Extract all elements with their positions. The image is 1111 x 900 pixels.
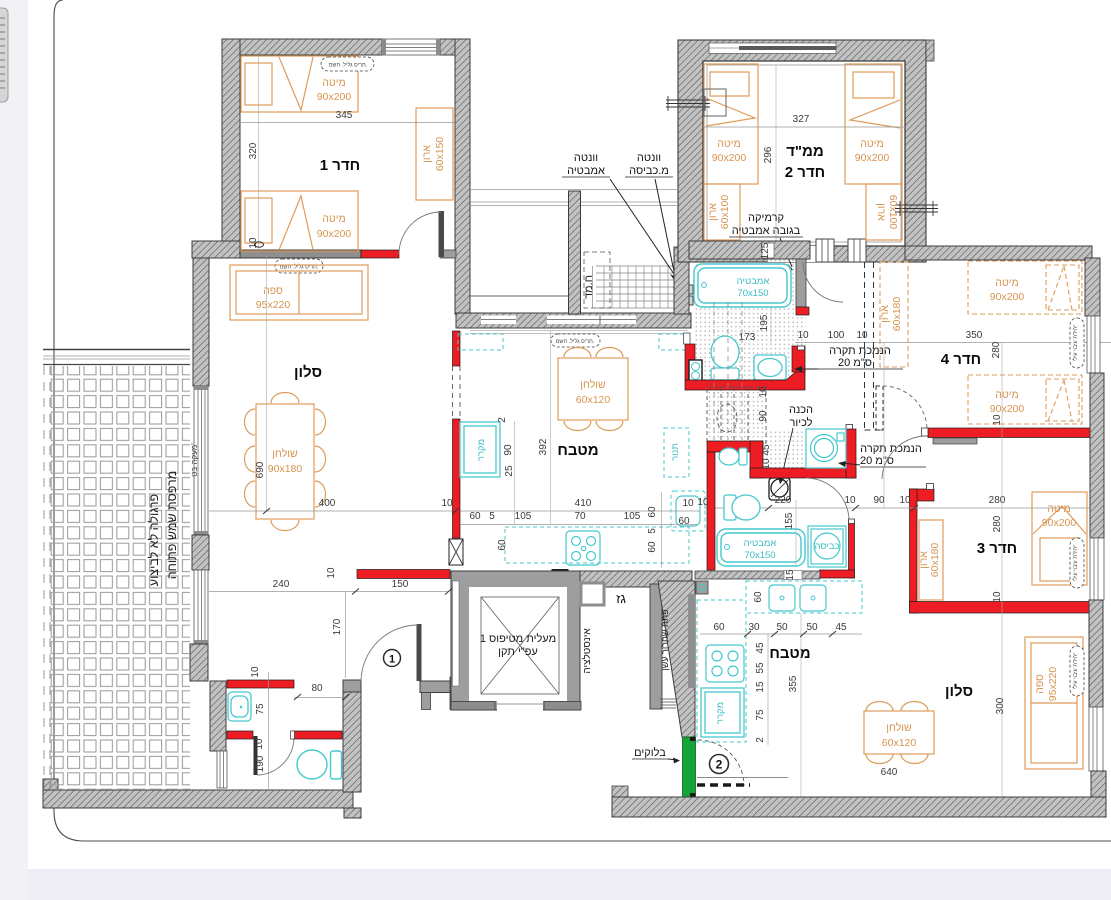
svg-text:תנור: תנור xyxy=(670,443,681,461)
svg-text:שולחן: שולחן xyxy=(580,379,606,391)
svg-text:פרגולה לא לביצוע: פרגולה לא לביצוע xyxy=(147,494,161,586)
svg-text:240: 240 xyxy=(273,579,290,590)
svg-text:60: 60 xyxy=(497,539,508,551)
svg-text:90: 90 xyxy=(873,495,885,506)
svg-text:חדר 2: חדר 2 xyxy=(785,164,825,181)
svg-text:אמבטיה: אמבטיה xyxy=(737,276,770,287)
svg-text:392: 392 xyxy=(538,438,549,455)
svg-text:55: 55 xyxy=(755,662,766,674)
svg-text:10: 10 xyxy=(992,414,1003,426)
svg-text:25: 25 xyxy=(504,465,515,477)
svg-text:70x150: 70x150 xyxy=(744,550,775,561)
svg-text:15: 15 xyxy=(785,569,796,581)
svg-text:20 ס"מ: 20 ס"מ xyxy=(838,357,872,369)
svg-text:חדר 3: חדר 3 xyxy=(977,540,1017,557)
svg-text:90x200: 90x200 xyxy=(990,403,1025,415)
svg-text:שולחן: שולחן xyxy=(886,722,912,734)
svg-text:ספה: ספה xyxy=(263,285,283,297)
svg-text:155: 155 xyxy=(784,512,795,529)
svg-text:הנמכת תקרה: הנמכת תקרה xyxy=(829,345,891,357)
svg-text:95x220: 95x220 xyxy=(256,299,291,311)
svg-text:80: 80 xyxy=(311,683,323,694)
svg-text:10: 10 xyxy=(250,666,261,678)
svg-text:2: 2 xyxy=(716,758,723,772)
svg-text:45: 45 xyxy=(755,642,766,654)
svg-text:עפ"י תקן: עפ"י תקן xyxy=(498,646,538,658)
svg-text:יחידת עיבוי עילי': יחידת עיבוי עילי' xyxy=(1072,325,1079,362)
svg-text:60x150: 60x150 xyxy=(434,137,446,172)
svg-text:170: 170 xyxy=(332,618,343,635)
svg-text:100: 100 xyxy=(828,330,845,341)
svg-text:320: 320 xyxy=(248,142,259,159)
svg-text:90x200: 90x200 xyxy=(855,152,890,164)
svg-text:ממ"ד: ממ"ד xyxy=(786,143,824,160)
svg-text:10: 10 xyxy=(254,738,265,750)
svg-text:150: 150 xyxy=(392,579,409,590)
svg-text:מטבח: מטבח xyxy=(769,645,810,662)
svg-text:190: 190 xyxy=(255,755,266,772)
svg-text:640: 640 xyxy=(881,767,898,778)
svg-text:מיטה: מיטה xyxy=(1047,503,1070,515)
svg-text:מיטה: מיטה xyxy=(322,77,345,89)
svg-text:בלוקים: בלוקים xyxy=(634,746,666,759)
svg-text:5: 5 xyxy=(647,528,658,534)
svg-text:ארון: ארון xyxy=(879,305,891,323)
svg-text:45: 45 xyxy=(761,444,772,456)
svg-text:5: 5 xyxy=(489,511,495,522)
svg-text:ח.מד: ח.מד xyxy=(583,275,595,299)
svg-text:45: 45 xyxy=(835,622,847,633)
svg-text:410: 410 xyxy=(575,498,592,509)
svg-text:10: 10 xyxy=(441,498,453,509)
svg-text:75: 75 xyxy=(255,703,266,715)
svg-text:15: 15 xyxy=(755,681,766,693)
svg-text:2: 2 xyxy=(755,737,766,743)
svg-text:שולחן: שולחן xyxy=(272,448,298,460)
svg-text:296: 296 xyxy=(763,146,774,163)
svg-text:10: 10 xyxy=(992,591,1003,603)
svg-text:90x200: 90x200 xyxy=(317,228,352,240)
svg-text:חדר 1: חדר 1 xyxy=(320,157,360,174)
svg-text:90: 90 xyxy=(503,444,514,456)
svg-text:355: 355 xyxy=(788,675,799,692)
svg-text:60: 60 xyxy=(753,591,764,603)
svg-text:מ.כביסה: מ.כביסה xyxy=(629,165,669,177)
svg-text:60x100: 60x100 xyxy=(719,195,731,230)
svg-text:קרמיקה: קרמיקה xyxy=(748,212,784,224)
svg-text:220: 220 xyxy=(775,495,792,506)
svg-text:280: 280 xyxy=(991,341,1002,358)
svg-text:ארון: ארון xyxy=(707,203,719,221)
svg-text:400: 400 xyxy=(319,498,336,509)
svg-text:אמבטיה: אמבטיה xyxy=(567,165,605,177)
svg-text:10: 10 xyxy=(761,458,772,470)
svg-text:וונטה: וונטה xyxy=(637,152,661,164)
svg-text:אמבטיה: אמבטיה xyxy=(744,538,777,549)
svg-text:מעקה בט': מעקה בט' xyxy=(190,443,199,477)
svg-text:327: 327 xyxy=(793,114,810,125)
svg-text:10: 10 xyxy=(899,495,911,506)
svg-text:10: 10 xyxy=(326,567,337,579)
svg-text:יחידת עיבוי עילי': יחידת עיבוי עילי' xyxy=(1072,653,1079,690)
svg-text:60x180: 60x180 xyxy=(929,543,941,578)
svg-text:70: 70 xyxy=(574,511,586,522)
svg-text:90x200: 90x200 xyxy=(712,152,747,164)
svg-text:300: 300 xyxy=(995,697,1006,714)
svg-text:וונטה: וונטה xyxy=(574,152,598,164)
svg-text:מיטה: מיטה xyxy=(995,389,1018,401)
svg-text:ארון: ארון xyxy=(875,203,887,221)
svg-text:אינסטלציה: אינסטלציה xyxy=(581,628,593,674)
svg-text:תריס גליל. חשמ.: תריס גליל. חשמ. xyxy=(556,338,595,345)
svg-text:173: 173 xyxy=(739,332,756,343)
svg-text:90x180: 90x180 xyxy=(268,463,303,475)
svg-text:90x200: 90x200 xyxy=(317,91,352,103)
svg-text:מקרר: מקרר xyxy=(476,439,487,461)
svg-text:280: 280 xyxy=(992,515,1003,532)
svg-text:יחידת עיבוי עילי': יחידת עיבוי עילי' xyxy=(1072,545,1079,582)
svg-text:60x180: 60x180 xyxy=(891,297,903,332)
svg-text:מיטה: מיטה xyxy=(860,138,883,150)
svg-text:60x120: 60x120 xyxy=(882,737,917,749)
svg-text:מיטה: מיטה xyxy=(995,277,1018,289)
svg-text:ספה: ספה xyxy=(1034,674,1046,694)
svg-text:מיטה: מיטה xyxy=(322,213,345,225)
svg-text:280: 280 xyxy=(989,495,1006,506)
svg-text:גז: גז xyxy=(616,591,626,606)
svg-text:מטבח: מטבח xyxy=(557,442,598,459)
svg-text:2: 2 xyxy=(497,417,508,423)
svg-text:125: 125 xyxy=(760,242,771,259)
svg-text:חדר 4: חדר 4 xyxy=(941,351,981,368)
svg-text:10: 10 xyxy=(248,237,259,249)
svg-text:10: 10 xyxy=(797,330,809,341)
svg-text:70x150: 70x150 xyxy=(737,288,768,299)
svg-text:75: 75 xyxy=(755,709,766,721)
svg-text:95x220: 95x220 xyxy=(1047,667,1059,702)
svg-text:מיטה: מיטה xyxy=(717,138,740,150)
svg-text:350: 350 xyxy=(966,330,983,341)
svg-text:60x100: 60x100 xyxy=(887,195,899,230)
svg-text:60: 60 xyxy=(713,622,725,633)
svg-text:מעלית מטיפוס 1: מעלית מטיפוס 1 xyxy=(480,632,556,645)
svg-text:105: 105 xyxy=(515,511,532,522)
svg-text:60: 60 xyxy=(647,506,658,518)
svg-text:ארון: ארון xyxy=(421,145,433,163)
svg-text:לכיור: לכיור xyxy=(790,416,813,429)
svg-text:60: 60 xyxy=(647,541,658,553)
svg-text:סלון: סלון xyxy=(945,683,973,700)
svg-text:60: 60 xyxy=(678,516,690,527)
svg-text:90: 90 xyxy=(758,410,769,422)
svg-text:10: 10 xyxy=(682,498,694,509)
svg-text:345: 345 xyxy=(336,110,353,121)
svg-text:1: 1 xyxy=(389,654,395,666)
svg-text:מרפסת שמש פתוחה: מרפסת שמש פתוחה xyxy=(165,471,179,580)
svg-text:10: 10 xyxy=(758,386,769,398)
svg-text:90x200: 90x200 xyxy=(990,291,1025,303)
svg-text:סלון: סלון xyxy=(294,364,322,381)
svg-text:60x120: 60x120 xyxy=(576,394,611,406)
svg-text:כביסה: כביסה xyxy=(814,541,839,552)
svg-text:הכנה: הכנה xyxy=(789,404,813,416)
svg-text:תריס גליל. חשמ.: תריס גליל. חשמ. xyxy=(329,62,368,69)
svg-text:60: 60 xyxy=(469,511,481,522)
svg-text:פתח שחרור עשן: פתח שחרור עשן xyxy=(660,609,670,670)
svg-text:50: 50 xyxy=(806,622,818,633)
svg-text:195: 195 xyxy=(759,314,770,331)
svg-text:105: 105 xyxy=(624,511,641,522)
svg-text:10: 10 xyxy=(856,330,868,341)
svg-text:בגובה אמבטיה: בגובה אמבטיה xyxy=(732,225,801,237)
svg-text:90x200: 90x200 xyxy=(1042,517,1077,529)
svg-text:690: 690 xyxy=(255,461,266,478)
svg-text:מקרר: מקרר xyxy=(715,702,726,724)
